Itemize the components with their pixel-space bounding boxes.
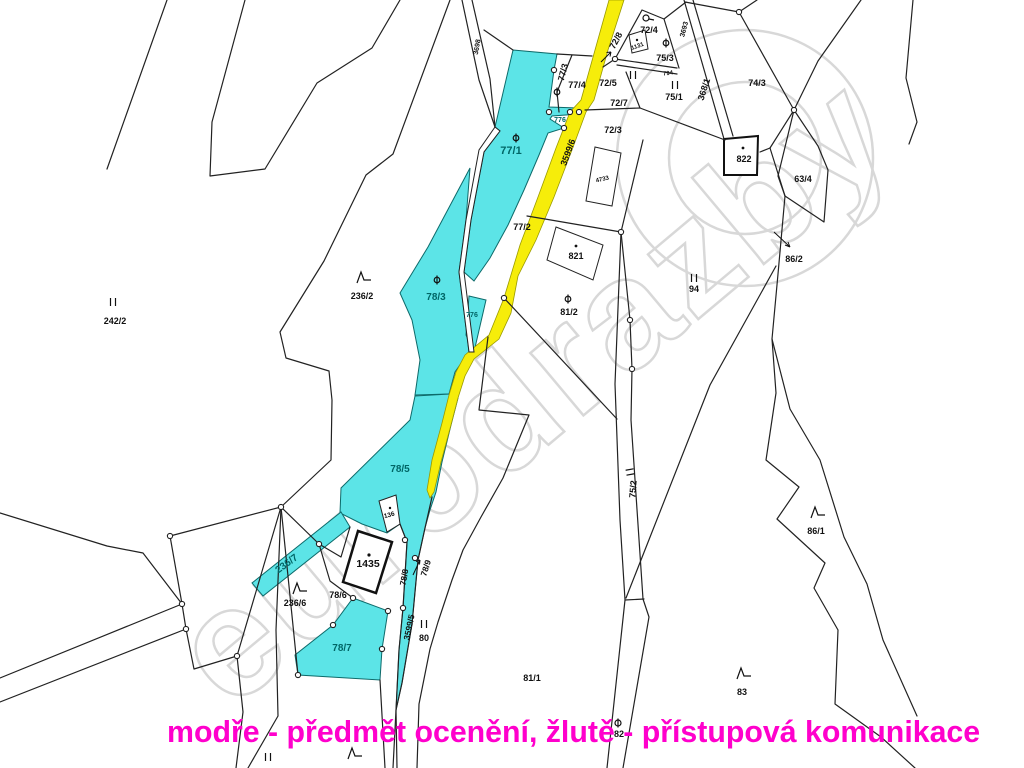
svg-text:1435: 1435	[356, 558, 380, 570]
svg-text:75/2: 75/2	[627, 480, 638, 498]
svg-text:83: 83	[737, 687, 747, 697]
svg-text:81/1: 81/1	[523, 673, 541, 683]
svg-text:63/4: 63/4	[794, 174, 812, 184]
svg-text:77/4: 77/4	[568, 80, 586, 90]
svg-text:236/6: 236/6	[284, 598, 307, 608]
svg-text:242/2: 242/2	[104, 316, 127, 326]
svg-text:78/6: 78/6	[329, 590, 347, 600]
svg-text:74/3: 74/3	[748, 78, 766, 88]
svg-text:75/3: 75/3	[656, 53, 674, 63]
svg-text:776: 776	[554, 117, 566, 124]
svg-text:236/2: 236/2	[351, 291, 374, 301]
svg-text:modře - předmět ocenění, žlutě: modře - předmět ocenění, žlutě - přístup…	[167, 716, 980, 749]
svg-text:821: 821	[568, 251, 583, 261]
svg-text:94: 94	[689, 284, 699, 294]
svg-text:77/2: 77/2	[513, 222, 531, 232]
svg-text:86/1: 86/1	[807, 526, 825, 536]
svg-text:72/5: 72/5	[599, 78, 617, 88]
svg-text:81/2: 81/2	[560, 307, 578, 317]
svg-text:78/7: 78/7	[332, 643, 352, 654]
svg-text:822: 822	[736, 154, 751, 164]
svg-text:78/3: 78/3	[426, 292, 446, 303]
svg-text:86/2: 86/2	[785, 254, 803, 264]
svg-text:80: 80	[419, 633, 429, 643]
svg-text:72/7: 72/7	[610, 98, 628, 108]
svg-text:776: 776	[466, 312, 478, 319]
svg-text:78/5: 78/5	[390, 464, 410, 475]
svg-text:75/1: 75/1	[665, 92, 683, 102]
svg-text:77/1: 77/1	[500, 145, 521, 157]
svg-text:72/3: 72/3	[604, 125, 622, 135]
svg-text:72/4: 72/4	[640, 25, 658, 35]
